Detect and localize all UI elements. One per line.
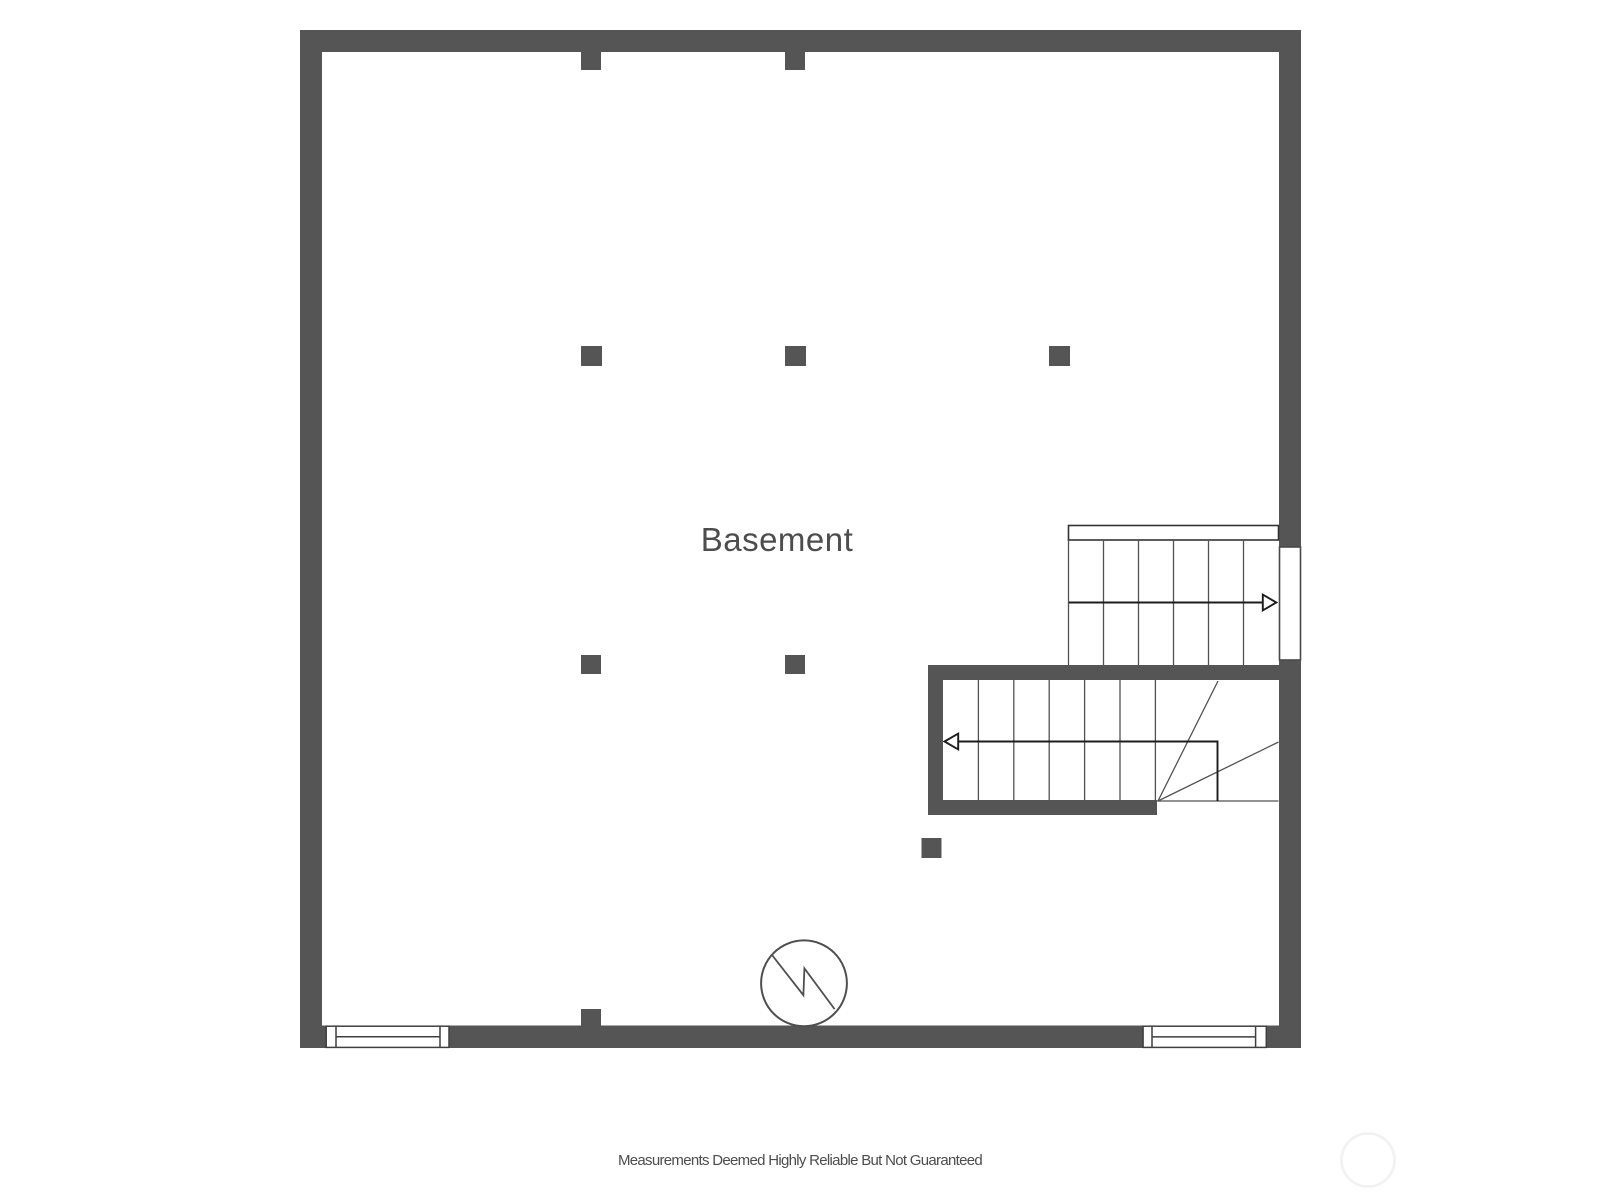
svg-text:Basement: Basement bbox=[701, 521, 854, 558]
svg-text:Measurements Deemed Highly Rel: Measurements Deemed Highly Reliable But … bbox=[618, 1152, 982, 1169]
